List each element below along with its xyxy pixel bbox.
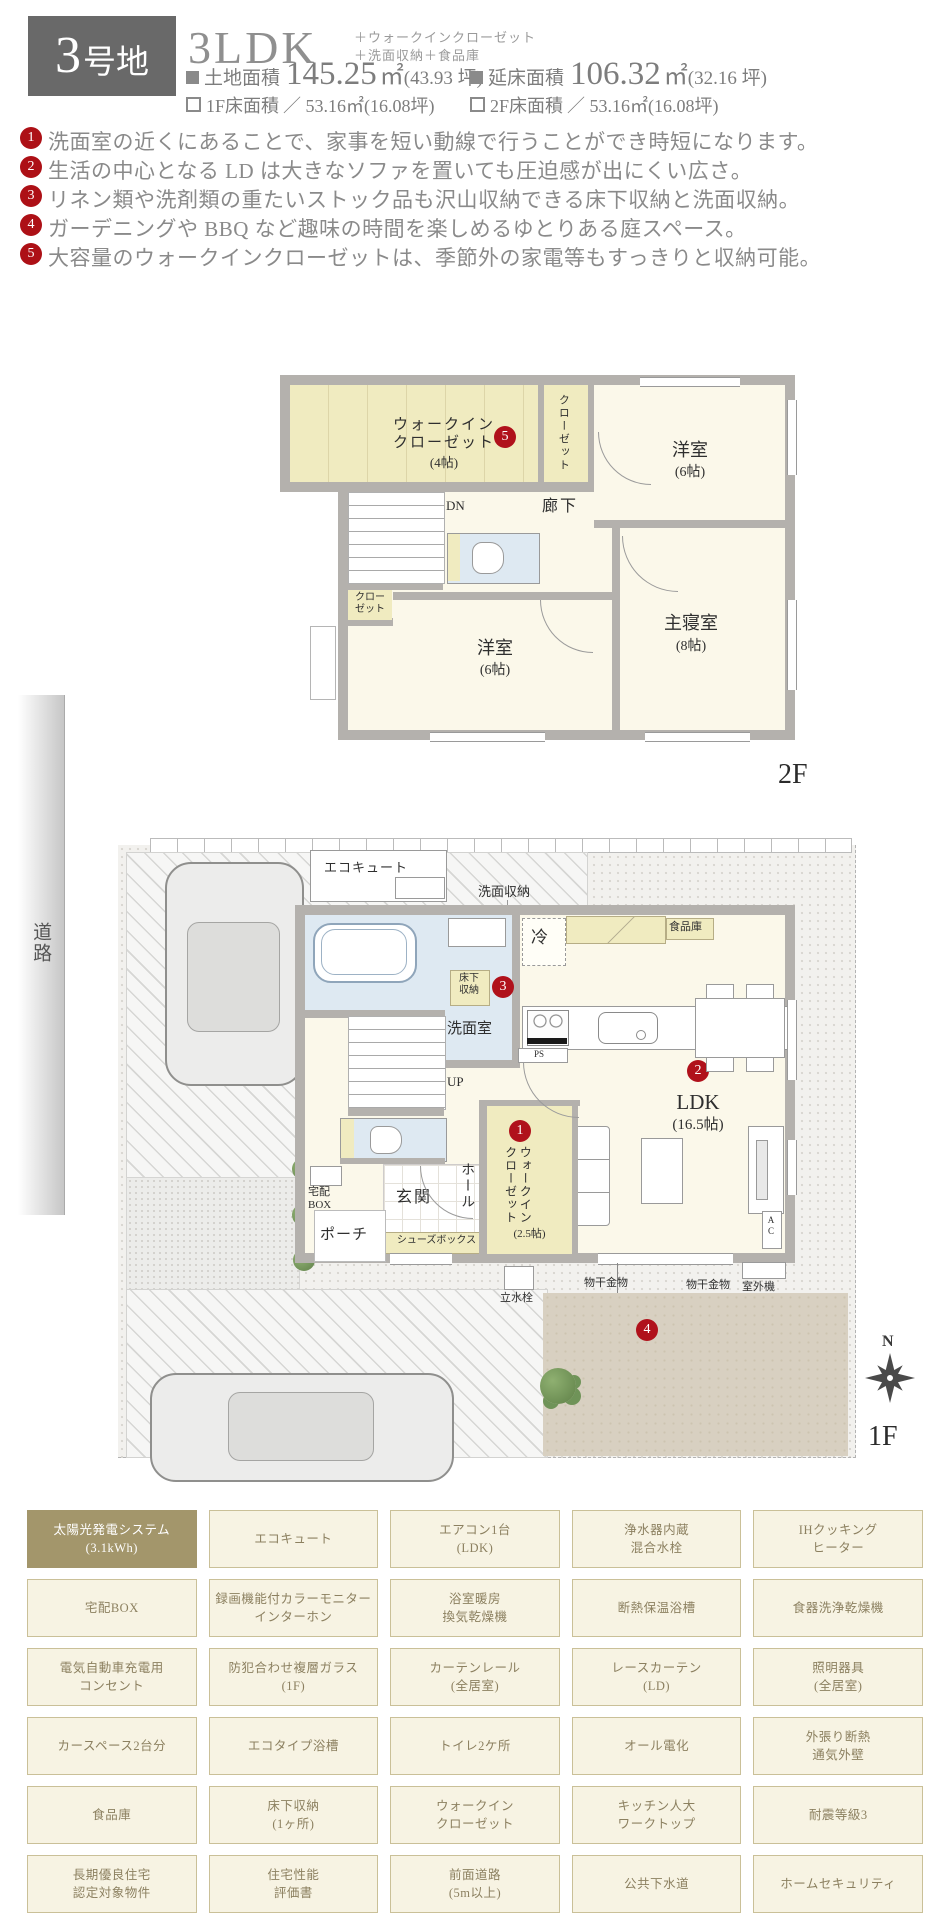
area-value: ／ 53.16㎡	[283, 92, 364, 118]
room-label-master: 主寝室	[653, 613, 729, 635]
plan-number-badge: 4	[636, 1319, 658, 1341]
plan-number-badge: 5	[494, 426, 516, 448]
equipment-cell: 宅配BOX	[27, 1579, 197, 1637]
land-area-line: 土地面積 145.25 ㎡ (43.93 坪)	[186, 56, 483, 93]
equipment-cell: 電気自動車充電用 コンセント	[27, 1648, 197, 1706]
equipment-cell: キッチン人大 ワークトップ	[572, 1786, 742, 1844]
hallway-label: 廊下	[542, 497, 578, 517]
toilet-shelf	[341, 1119, 354, 1159]
window	[640, 377, 740, 387]
filled-square-icon	[470, 71, 483, 84]
outline-square-icon	[470, 97, 485, 112]
plan-extra-1: ＋ウォークインクローゼット	[354, 30, 536, 46]
delivery-box-label: 宅配 BOX	[308, 1186, 331, 1213]
wall	[612, 528, 620, 732]
room-label-wic: ウォークイン クローゼット	[384, 416, 504, 453]
total-floor-area-line: 延床面積 106.32 ㎡ (32.16 坪)	[470, 56, 767, 93]
pantry-label: 食品庫	[669, 921, 702, 934]
equipment-cell: エコタイプ浴槽	[209, 1717, 379, 1775]
shoe-box-label: シューズボックス	[383, 1235, 490, 1247]
stairs-down-label: DN	[446, 498, 465, 514]
area-value: 145.25	[286, 56, 377, 93]
outline-square-icon	[186, 97, 201, 112]
area-value: 106.32	[570, 56, 661, 93]
floor-label-2f: 2F	[778, 758, 808, 792]
room-label-bedroom1: 洋室	[659, 440, 721, 462]
equipment-cell: 長期優良住宅 認定対象物件	[27, 1855, 197, 1913]
equipment-cell: IHクッキング ヒーター	[753, 1510, 923, 1568]
equipment-cell: 住宅性能 評価書	[209, 1855, 379, 1913]
room-label-closet: クローゼット	[556, 394, 569, 480]
equipment-table: 太陽光発電システム (3.1kWh) エコキュート エアコン1台 (LDK) 浄…	[27, 1510, 923, 1913]
dining-chair	[746, 984, 774, 999]
wall	[594, 520, 785, 528]
coffee-table	[641, 1138, 683, 1204]
outdoor-faucet-label: 立水栓	[500, 1292, 533, 1305]
window	[787, 1140, 797, 1195]
plan-number-badge: 1	[509, 1120, 531, 1142]
area-tsubo: (32.16 坪)	[688, 63, 767, 90]
area-unit: ㎡	[664, 56, 688, 91]
porch-label: ポーチ	[320, 1226, 368, 1244]
room-label-closet2: クロー ゼット	[349, 592, 391, 616]
ecocute-label: エコキュート	[324, 860, 408, 876]
floor1-area-line: 1F床面積 ／ 53.16㎡ (16.08坪)	[186, 92, 435, 118]
wic-label: ウォークイン クローゼット	[503, 1146, 532, 1224]
equipment-cell: 太陽光発電システム (3.1kWh)	[27, 1510, 197, 1568]
area-value: ／ 53.16㎡	[567, 92, 648, 118]
flyer-page: { "header": { "lot_num": "3", "lot_suffi…	[0, 0, 950, 1915]
area-unit: ㎡	[380, 56, 404, 91]
entrance-door	[390, 1253, 452, 1265]
car-roof	[187, 922, 280, 1032]
ldk-label: LDK	[662, 1090, 734, 1116]
wall	[348, 1108, 444, 1116]
staircase	[348, 492, 445, 584]
equipment-cell: レースカーテン (LD)	[572, 1648, 742, 1706]
wall	[572, 1106, 578, 1256]
dining-chair	[746, 1057, 774, 1072]
lot-suffix: 号地	[83, 33, 149, 80]
window	[787, 400, 797, 475]
outdoor-faucet	[504, 1266, 534, 1290]
window	[430, 732, 545, 742]
garden-tree	[540, 1368, 576, 1404]
stairs-up-label: UP	[447, 1074, 464, 1090]
ldk-size-label: (16.5帖)	[662, 1116, 734, 1134]
road-label: 道路	[29, 922, 52, 964]
compass-rose-icon	[864, 1352, 916, 1404]
feature-text: 生活の中心となる LD は大きなソファを置いても圧迫感が出にくい広さ。	[48, 155, 752, 185]
equipment-cell: 公共下水道	[572, 1855, 742, 1913]
area-tsubo: (16.08坪)	[648, 92, 719, 118]
feature-number-badge: 3	[20, 185, 42, 207]
staircase	[348, 1016, 446, 1110]
area-tsubo: (16.08坪)	[364, 92, 435, 118]
outdoor-ac-unit	[742, 1262, 786, 1279]
feature-number-badge: 4	[20, 214, 42, 236]
paved-area	[126, 1177, 300, 1291]
floor-label-1f: 1F	[868, 1420, 898, 1454]
area-label: 2F床面積	[490, 92, 563, 118]
equipment-cell: 録画機能付カラーモニター インターホン	[209, 1579, 379, 1637]
equipment-cell: エコキュート	[209, 1510, 379, 1568]
toilet-shelf	[448, 534, 460, 581]
equipment-cell: 耐震等級3	[753, 1786, 923, 1844]
stove-front	[527, 1038, 567, 1044]
equipment-cell: エアコン1台 (LDK)	[390, 1510, 560, 1568]
ecocute-tank	[395, 877, 445, 899]
wall	[300, 482, 594, 492]
fridge-label: 冷	[531, 928, 548, 949]
area-label: 土地面積	[204, 63, 280, 90]
equipment-cell: トイレ2ケ所	[390, 1717, 560, 1775]
bathtub-inner	[321, 929, 407, 975]
room-label-bedroom2: 洋室	[464, 638, 526, 660]
wall	[445, 1060, 520, 1068]
washroom-label: 洗面室	[447, 1020, 492, 1038]
washroom-storage-label: 洗面収納	[478, 884, 530, 900]
equipment-cell: カーテンレール (全居室)	[390, 1648, 560, 1706]
window	[787, 600, 797, 690]
equipment-cell: 照明器具 (全居室)	[753, 1648, 923, 1706]
ac-label: A C	[762, 1215, 780, 1237]
equipment-cell: 床下収納 (1ヶ所)	[209, 1786, 379, 1844]
feature-text: ガーデニングや BBQ など趣味の時間を楽しめるゆとりある庭スペース。	[48, 213, 747, 243]
compass-north-label: N	[882, 1332, 894, 1352]
equipment-cell: カースペース2台分	[27, 1717, 197, 1775]
equipment-cell: 食器洗浄乾燥機	[753, 1579, 923, 1637]
dining-chair	[706, 984, 734, 999]
room-size-bedroom1: (6帖)	[661, 464, 719, 481]
area-label: 延床面積	[488, 63, 564, 90]
equipment-cell: 食品庫	[27, 1786, 197, 1844]
window	[645, 732, 750, 742]
kitchen-sink	[598, 1012, 658, 1044]
area-label: 1F床面積	[206, 92, 279, 118]
plan-number-badge: 3	[492, 976, 514, 998]
equipment-cell: 外張り断熱 通気外壁	[753, 1717, 923, 1775]
sliding-door	[598, 1253, 733, 1265]
laundry-hanger-label: 物干金物	[686, 1279, 730, 1292]
filled-square-icon	[186, 71, 199, 84]
equipment-cell: ホームセキュリティ	[753, 1855, 923, 1913]
boundary-wall	[150, 838, 852, 853]
toilet-fixture	[370, 1126, 402, 1154]
equipment-cell: 断熱保温浴槽	[572, 1579, 742, 1637]
feature-text: 大容量のウォークインクローゼットは、季節外の家電等もすっきりと収納可能。	[48, 242, 821, 272]
equipment-cell: オール電化	[572, 1717, 742, 1775]
dining-table	[695, 998, 785, 1058]
feature-number-badge: 1	[20, 127, 42, 149]
room-size-wic: (4帖)	[384, 455, 504, 471]
equipment-cell: ウォークイン クローゼット	[390, 1786, 560, 1844]
room-size-master: (8帖)	[658, 638, 724, 655]
wall	[479, 1106, 487, 1256]
lower-roof	[310, 626, 336, 700]
room-size-bedroom2: (6帖)	[466, 662, 524, 679]
window	[787, 1000, 797, 1080]
car-roof	[228, 1392, 374, 1461]
feature-text: 洗面室の近くにあることで、家事を短い動線で行うことができ時短になります。	[48, 126, 818, 156]
wic-size-label: (2.5帖)	[487, 1228, 572, 1241]
pipe-space-label: PS	[534, 1049, 544, 1060]
kitchen-cabinets	[566, 916, 666, 944]
underfloor-storage-label: 床下 収納	[450, 973, 488, 997]
toilet-fixture	[472, 542, 504, 574]
wall	[588, 385, 594, 492]
faucet-dot	[636, 1030, 646, 1040]
equipment-cell: 浄水器内蔵 混合水栓	[572, 1510, 742, 1568]
equipment-cell: 前面道路 (5m以上)	[390, 1855, 560, 1913]
floor2-area-line: 2F床面積 ／ 53.16㎡ (16.08坪)	[470, 92, 719, 118]
garden	[543, 1293, 848, 1456]
laundry-hanger-label: 物干金物	[584, 1277, 628, 1290]
wall	[393, 592, 615, 600]
lot-badge: 3号地	[28, 16, 176, 96]
feature-text: リネン類や洗剤類の重たいストック品も沢山収納できる床下収納と洗面収納。	[48, 184, 800, 214]
feature-number-badge: 2	[20, 156, 42, 178]
equipment-cell: 防犯合わせ複層ガラス (1F)	[209, 1648, 379, 1706]
vanity-cabinet	[448, 918, 506, 947]
dining-chair	[706, 1057, 734, 1072]
feature-number-badge: 5	[20, 243, 42, 265]
lot-number: 3	[55, 30, 81, 82]
equipment-cell: 浴室暖房 換気乾燥機	[390, 1579, 560, 1637]
delivery-box	[310, 1166, 342, 1186]
tv-screen	[756, 1140, 768, 1200]
